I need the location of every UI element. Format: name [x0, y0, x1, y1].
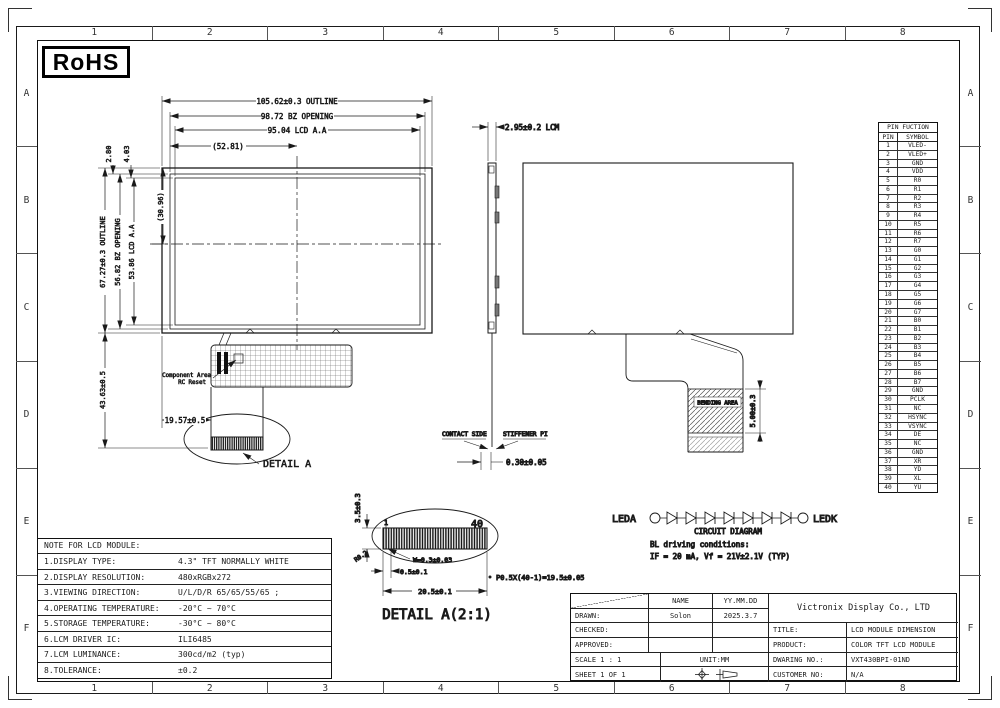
pin-symbol: NC — [898, 440, 937, 448]
pin-row: 17 G4 — [879, 282, 937, 291]
title-block-diag-cell — [571, 594, 649, 609]
grid-columns-top: 12345678 — [37, 26, 960, 40]
grid-row-label: A — [960, 40, 981, 146]
pin-number: 27 — [879, 370, 898, 378]
pin-symbol: G0 — [898, 247, 937, 255]
drawing-no-value: VXT430BPI-01ND — [847, 653, 958, 667]
pin-row: 32 HSYNC — [879, 414, 937, 423]
pin-row: 15 G2 — [879, 265, 937, 274]
note-value: ±0.2 — [178, 663, 331, 679]
pin-number: 32 — [879, 414, 898, 422]
checked-date — [713, 623, 769, 638]
rohs-stamp: RoHS — [42, 46, 130, 78]
pin-symbol: R2 — [898, 195, 937, 203]
pin-row: 8 R3 — [879, 203, 937, 212]
grid-row-label: B — [960, 146, 981, 253]
grid-row-label: D — [16, 361, 37, 468]
pin-row: 14 G1 — [879, 256, 937, 265]
grid-rows-left: ABCDEF — [16, 40, 37, 682]
sheet-cell: SHEET 1 OF 1 — [571, 667, 661, 682]
pin-number: 39 — [879, 475, 898, 483]
note-row: 4.OPERATING TEMPERATURE: -20°C ~ 70°C — [38, 601, 331, 617]
pin-symbol: B5 — [898, 361, 937, 369]
pin-number: 40 — [879, 484, 898, 493]
pin-row: 31 NC — [879, 405, 937, 414]
pin-number: 22 — [879, 326, 898, 334]
grid-col-label: 3 — [267, 682, 383, 694]
grid-col-label: 2 — [152, 682, 268, 694]
projection-symbols — [661, 667, 769, 682]
note-value: 480xRGBx272 — [178, 570, 331, 585]
note-value: ILI6485 — [178, 632, 331, 647]
pin-symbol: B1 — [898, 326, 937, 334]
note-value: -30°C ~ 80°C — [178, 616, 331, 631]
grid-row-label: B — [16, 146, 37, 253]
trim-mark — [968, 8, 992, 32]
pin-number: 24 — [879, 344, 898, 352]
note-row: 1.DISPLAY TYPE: 4.3" TFT NORMALLY WHITE — [38, 554, 331, 570]
grid-row-label: F — [960, 575, 981, 682]
approved-label: APPROVED: — [571, 638, 649, 653]
grid-col-label: 3 — [267, 26, 383, 40]
pin-row: 13 G0 — [879, 247, 937, 256]
pin-row: 21 B0 — [879, 317, 937, 326]
grid-col-label: 4 — [383, 26, 499, 40]
title-block: NAME YY.MM.DD DRAWN: Solon 2025.3.7 CHEC… — [570, 593, 957, 681]
grid-col-label: 5 — [498, 682, 614, 694]
product-value: COLOR TFT LCD MODULE — [847, 638, 958, 653]
grid-col-label: 2 — [152, 26, 268, 40]
title-value: LCD MODULE DIMENSION — [847, 623, 958, 638]
date-header: YY.MM.DD — [713, 594, 769, 609]
pin-number: 29 — [879, 387, 898, 395]
note-label: 1.DISPLAY TYPE: — [38, 554, 178, 569]
pin-number: 1 — [879, 142, 898, 150]
pin-number: 25 — [879, 352, 898, 360]
pin-number: 15 — [879, 265, 898, 273]
note-value: U/L/D/R 65/65/55/65 ; — [178, 585, 331, 600]
pin-number: 17 — [879, 282, 898, 290]
note-table-rows: 1.DISPLAY TYPE: 4.3" TFT NORMALLY WHITE … — [38, 554, 331, 678]
grid-col-label: 1 — [37, 682, 152, 694]
drawn-date: 2025.3.7 — [713, 609, 769, 623]
pin-symbol: R4 — [898, 212, 937, 220]
pin-number: 23 — [879, 335, 898, 343]
pin-symbol: GND — [898, 160, 937, 168]
pin-row: 28 B7 — [879, 379, 937, 388]
note-label: 6.LCM DRIVER IC: — [38, 632, 178, 647]
pin-symbol: R5 — [898, 221, 937, 229]
pin-number: 36 — [879, 449, 898, 457]
pin-number: 18 — [879, 291, 898, 299]
note-table: NOTE FOR LCD MODULE: 1.DISPLAY TYPE: 4.3… — [37, 538, 332, 679]
pin-symbol: YU — [898, 484, 937, 493]
note-value: -20°C ~ 70°C — [178, 601, 331, 616]
pin-symbol: B4 — [898, 352, 937, 360]
scale-cell: SCALE 1 : 1 — [571, 653, 661, 667]
pin-row: 20 G7 — [879, 309, 937, 318]
pin-number: 5 — [879, 177, 898, 185]
checked-label: CHECKED: — [571, 623, 649, 638]
customer-no-label: CUSTOMER NO: — [769, 667, 847, 682]
approved-name — [649, 638, 713, 653]
pin-symbol: GND — [898, 387, 937, 395]
grid-row-label: D — [960, 361, 981, 468]
drawn-label: DRAWN: — [571, 609, 649, 623]
checked-name — [649, 623, 713, 638]
note-row: 5.STORAGE TEMPERATURE: -30°C ~ 80°C — [38, 616, 331, 632]
pin-number: 34 — [879, 431, 898, 439]
customer-no-value: N/A — [847, 667, 958, 682]
drawing-no-label: DWARING NO.: — [769, 653, 847, 667]
pin-number: 30 — [879, 396, 898, 404]
pin-row: 40 YU — [879, 484, 937, 493]
pin-row: 37 XR — [879, 458, 937, 467]
pin-number: 38 — [879, 466, 898, 474]
grid-row-label: A — [16, 40, 37, 146]
pin-symbol: G6 — [898, 300, 937, 308]
note-label: 2.DISPLAY RESOLUTION: — [38, 570, 178, 585]
pin-symbol: B3 — [898, 344, 937, 352]
grid-col-label: 5 — [498, 26, 614, 40]
grid-col-label: 6 — [614, 682, 730, 694]
pin-row: 23 B2 — [879, 335, 937, 344]
name-header: NAME — [649, 594, 713, 609]
approved-date — [713, 638, 769, 653]
pin-row: 24 B3 — [879, 344, 937, 353]
note-table-header: NOTE FOR LCD MODULE: — [38, 539, 331, 554]
grid-row-label: E — [960, 468, 981, 575]
pin-symbol: VDD — [898, 168, 937, 176]
pin-row: 9 R4 — [879, 212, 937, 221]
pin-number: 4 — [879, 168, 898, 176]
note-value: 300cd/m2 (typ) — [178, 647, 331, 662]
pin-row: 27 B6 — [879, 370, 937, 379]
drawing-sheet: 105.62±0.3 OUTLINE 98.72 BZ OPENING 95.0… — [0, 0, 1000, 708]
pin-col-header: PIN — [879, 133, 898, 142]
pin-symbol: GND — [898, 449, 937, 457]
pin-symbol: G4 — [898, 282, 937, 290]
pin-symbol: PCLK — [898, 396, 937, 404]
pin-number: 21 — [879, 317, 898, 325]
pin-row: 4 VDD — [879, 168, 937, 177]
note-row: 3.VIEWING DIRECTION: U/L/D/R 65/65/55/65… — [38, 585, 331, 601]
note-row: 7.LCM LUMINANCE: 300cd/m2 (typ) — [38, 647, 331, 663]
pin-row: 12 R7 — [879, 238, 937, 247]
title-label: TITLE: — [769, 623, 847, 638]
note-row: 2.DISPLAY RESOLUTION: 480xRGBx272 — [38, 570, 331, 586]
pin-symbol: R1 — [898, 186, 937, 194]
pin-number: 31 — [879, 405, 898, 413]
pin-number: 16 — [879, 273, 898, 281]
note-row: 6.LCM DRIVER IC: ILI6485 — [38, 632, 331, 648]
pin-number: 9 — [879, 212, 898, 220]
pin-symbol: DE — [898, 431, 937, 439]
pin-row: 22 B1 — [879, 326, 937, 335]
pin-symbol: G2 — [898, 265, 937, 273]
grid-col-label: 7 — [729, 26, 845, 40]
pin-row: 10 R5 — [879, 221, 937, 230]
grid-col-label: 8 — [845, 682, 961, 694]
pin-symbol: G5 — [898, 291, 937, 299]
grid-col-label: 6 — [614, 26, 730, 40]
pin-number: 8 — [879, 203, 898, 211]
pin-row: 36 GND — [879, 449, 937, 458]
pin-row: 34 DE — [879, 431, 937, 440]
pin-symbol: NC — [898, 405, 937, 413]
pin-row: 3 GND — [879, 160, 937, 169]
note-label: 8.TOLERANCE: — [38, 663, 178, 679]
pin-number: 19 — [879, 300, 898, 308]
pin-row: 26 B5 — [879, 361, 937, 370]
pin-number: 2 — [879, 151, 898, 159]
pin-symbol: B0 — [898, 317, 937, 325]
pin-symbol: B7 — [898, 379, 937, 387]
pin-row: 6 R1 — [879, 186, 937, 195]
pin-table-title: PIN FUCTION — [879, 123, 937, 133]
pin-symbol: R3 — [898, 203, 937, 211]
grid-row-label: C — [960, 253, 981, 360]
pin-row: 7 R2 — [879, 195, 937, 204]
symbol-col-header: SYMBOL — [898, 133, 937, 142]
pin-symbol: R6 — [898, 230, 937, 238]
company-name: Victronix Display Co., LTD — [769, 594, 958, 623]
pin-symbol: B2 — [898, 335, 937, 343]
pin-row: 16 G3 — [879, 273, 937, 282]
pin-symbol: R0 — [898, 177, 937, 185]
grid-row-label: E — [16, 468, 37, 575]
pin-row: 38 YD — [879, 466, 937, 475]
pin-row: 30 PCLK — [879, 396, 937, 405]
drawn-name: Solon — [649, 609, 713, 623]
note-label: 7.LCM LUMINANCE: — [38, 647, 178, 662]
pin-number: 35 — [879, 440, 898, 448]
pin-table-columns: PIN SYMBOL — [879, 133, 937, 143]
pin-function-table: PIN FUCTION PIN SYMBOL 1 VLED- 2 VLED+ 3… — [878, 122, 938, 493]
pin-number: 28 — [879, 379, 898, 387]
pin-row: 18 G5 — [879, 291, 937, 300]
pin-symbol: YD — [898, 466, 937, 474]
pin-symbol: XL — [898, 475, 937, 483]
grid-col-label: 1 — [37, 26, 152, 40]
pin-number: 7 — [879, 195, 898, 203]
pin-row: 5 R0 — [879, 177, 937, 186]
grid-rows-right: ABCDEF — [960, 40, 981, 682]
note-label: 5.STORAGE TEMPERATURE: — [38, 616, 178, 631]
projection-symbol-icon — [662, 667, 768, 682]
pin-row: 25 B4 — [879, 352, 937, 361]
note-label: 4.OPERATING TEMPERATURE: — [38, 601, 178, 616]
grid-row-label: F — [16, 575, 37, 682]
grid-row-label: C — [16, 253, 37, 360]
pin-number: 37 — [879, 458, 898, 466]
pin-number: 6 — [879, 186, 898, 194]
pin-row: 39 XL — [879, 475, 937, 484]
product-label: PRODUCT: — [769, 638, 847, 653]
pin-number: 26 — [879, 361, 898, 369]
note-row: 8.TOLERANCE: ±0.2 — [38, 663, 331, 679]
pin-number: 33 — [879, 423, 898, 431]
pin-number: 10 — [879, 221, 898, 229]
pin-row: 19 G6 — [879, 300, 937, 309]
pin-symbol: B6 — [898, 370, 937, 378]
pin-symbol: R7 — [898, 238, 937, 246]
pin-symbol: G7 — [898, 309, 937, 317]
pin-table-body: 1 VLED- 2 VLED+ 3 GND 4 VDD 5 R0 6 R1 7 … — [879, 142, 937, 493]
pin-number: 3 — [879, 160, 898, 168]
grid-col-label: 8 — [845, 26, 961, 40]
pin-symbol: VLED+ — [898, 151, 937, 159]
note-label: 3.VIEWING DIRECTION: — [38, 585, 178, 600]
pin-number: 12 — [879, 238, 898, 246]
pin-symbol: XR — [898, 458, 937, 466]
pin-row: 2 VLED+ — [879, 151, 937, 160]
pin-row: 33 VSYNC — [879, 423, 937, 432]
pin-symbol: HSYNC — [898, 414, 937, 422]
pin-symbol: G1 — [898, 256, 937, 264]
pin-number: 14 — [879, 256, 898, 264]
grid-col-label: 4 — [383, 682, 499, 694]
pin-symbol: VSYNC — [898, 423, 937, 431]
note-value: 4.3" TFT NORMALLY WHITE — [178, 554, 331, 569]
pin-number: 11 — [879, 230, 898, 238]
pin-row: 1 VLED- — [879, 142, 937, 151]
pin-number: 20 — [879, 309, 898, 317]
pin-number: 13 — [879, 247, 898, 255]
grid-columns-bottom: 12345678 — [37, 682, 960, 694]
unit-cell: UNIT:MM — [661, 653, 769, 667]
pin-row: 11 R6 — [879, 230, 937, 239]
pin-row: 35 NC — [879, 440, 937, 449]
trim-mark — [8, 8, 32, 32]
pin-row: 29 GND — [879, 387, 937, 396]
grid-col-label: 7 — [729, 682, 845, 694]
pin-symbol: G3 — [898, 273, 937, 281]
pin-symbol: VLED- — [898, 142, 937, 150]
